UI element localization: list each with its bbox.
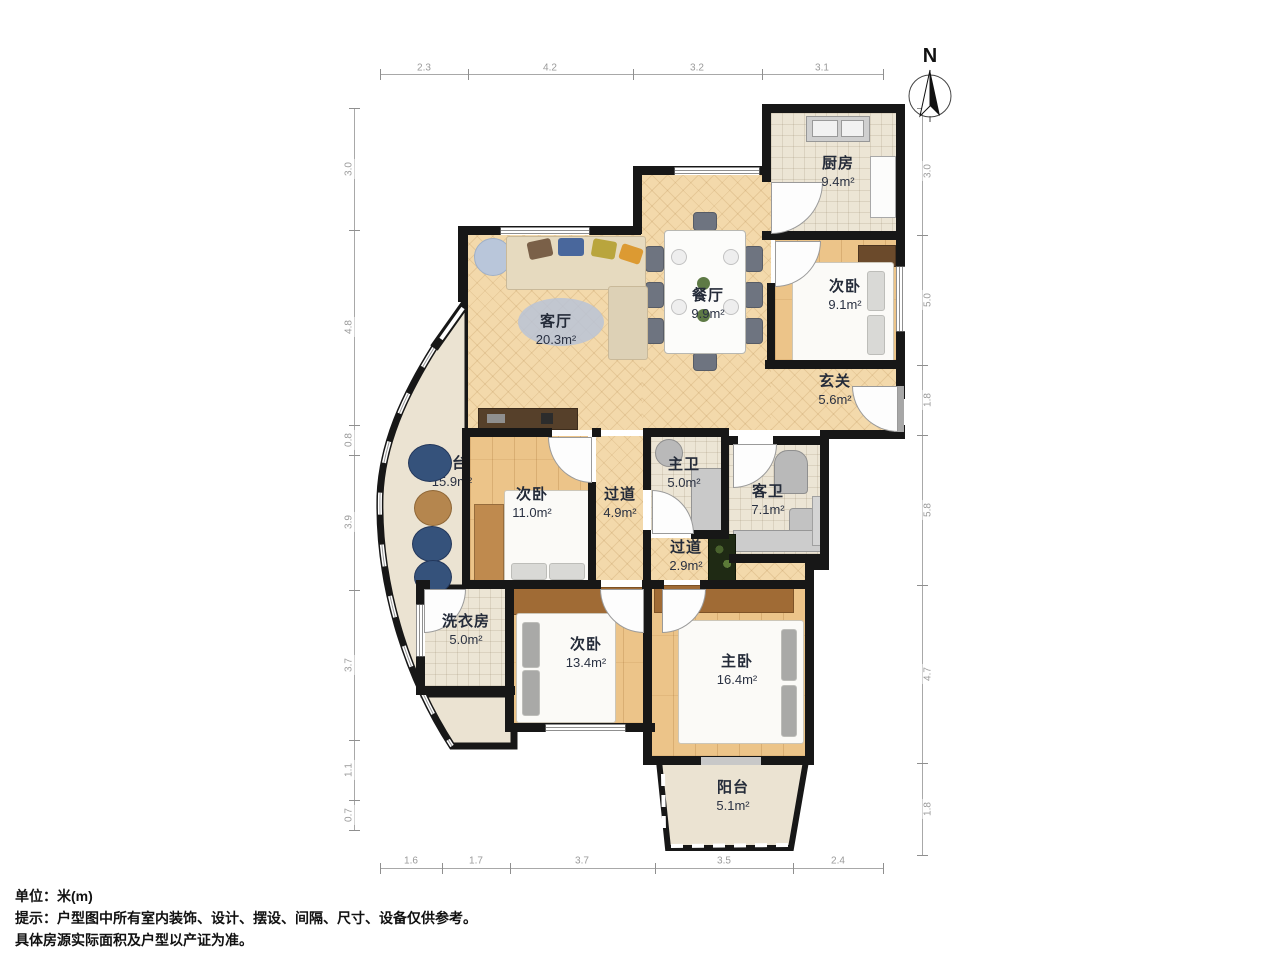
dim-tick <box>349 740 360 741</box>
dim-tick <box>349 425 360 426</box>
dim-right-3: 5.8 <box>923 500 934 520</box>
sofa-pillow-blue <box>558 238 584 256</box>
kitchen-sink-basin-right <box>841 120 864 137</box>
dim-right-1: 5.0 <box>923 290 934 310</box>
dim-tick <box>349 800 360 801</box>
wall <box>643 428 729 437</box>
notice-line-2: 具体房源实际面积及户型以产证为准。 <box>15 930 253 950</box>
bedroom3-wardrobe <box>474 504 504 584</box>
sofa-pillow-yellow <box>591 238 618 260</box>
wall <box>633 166 642 234</box>
wall <box>416 686 515 695</box>
dimension-line-right <box>922 108 923 855</box>
balcony-left-window <box>663 774 664 830</box>
living-window <box>500 227 590 235</box>
bedroom4-window <box>545 724 626 732</box>
kitchen-counter <box>870 156 896 218</box>
wall <box>896 104 905 399</box>
dim-tick <box>349 830 360 831</box>
dim-tick <box>917 855 928 856</box>
floorplan-page: 厨房9.4m² 次卧9.1m² 玄关5.6m² 餐厅9.9m² 客厅20.3m²… <box>0 0 1280 960</box>
wall <box>643 534 651 580</box>
tv-cabinet <box>478 408 578 430</box>
wall <box>762 104 905 113</box>
dining-chair <box>693 352 717 371</box>
guest-bath-toilet <box>774 450 808 494</box>
dim-right-2: 1.8 <box>923 390 934 410</box>
dim-tick <box>380 863 381 874</box>
dining-table <box>664 230 746 354</box>
bedroom3-bed <box>504 490 592 584</box>
dining-chair <box>693 212 717 231</box>
dim-top-1: 4.2 <box>540 63 560 74</box>
master-bed <box>678 620 804 744</box>
wall <box>767 283 775 365</box>
dim-tick <box>349 230 360 231</box>
dim-tick <box>655 863 656 874</box>
wall <box>462 428 470 589</box>
wall <box>416 580 430 589</box>
wall <box>729 554 822 563</box>
dim-left-0: 3.0 <box>344 159 355 179</box>
dim-left-2: 0.8 <box>344 430 355 450</box>
wall <box>691 530 729 539</box>
dim-bottom-2: 3.7 <box>572 856 592 867</box>
kitchen-sink-basin-left <box>812 120 838 137</box>
dining-window <box>674 167 760 175</box>
dining-chair <box>744 318 763 344</box>
dim-tick <box>793 863 794 874</box>
bedroom4-bed <box>516 613 616 723</box>
dim-tick <box>762 69 763 80</box>
dimension-line-top <box>380 74 883 75</box>
dim-tick <box>442 863 443 874</box>
wall <box>505 589 514 732</box>
dim-tick <box>349 590 360 591</box>
bedroom2-window <box>896 266 905 332</box>
dim-tick <box>349 455 360 456</box>
wall <box>462 428 552 437</box>
balcony-floor-shape <box>659 761 806 848</box>
dim-top-0: 2.3 <box>414 63 434 74</box>
master-bath-shower <box>691 468 724 532</box>
terrace-chair <box>412 526 452 562</box>
dimension-line-left <box>354 108 355 830</box>
dim-left-5: 1.1 <box>344 760 355 780</box>
dim-left-6: 0.7 <box>344 805 355 825</box>
terrace-table <box>414 490 452 526</box>
hallway1-floor <box>596 436 643 580</box>
wall <box>642 580 664 589</box>
north-label: N <box>923 45 937 67</box>
dimension-line-bottom <box>380 868 883 869</box>
dim-tick <box>510 863 511 874</box>
wall <box>805 561 814 765</box>
corridor-floor <box>729 562 805 580</box>
living-sofa-chaise <box>608 286 648 360</box>
dim-tick <box>917 763 928 764</box>
dim-left-3: 3.9 <box>344 512 355 532</box>
dim-bottom-4: 2.4 <box>828 856 848 867</box>
bedroom2-bed <box>792 262 894 362</box>
dim-tick <box>917 235 928 236</box>
dim-top-3: 3.1 <box>812 63 832 74</box>
wall <box>462 580 601 589</box>
wall <box>700 580 805 589</box>
dining-chair <box>744 282 763 308</box>
notice-line-1: 提示：户型图中所有室内装饰、设计、摆设、间隔、尺寸、设备仅供参考。 <box>15 908 477 928</box>
north-compass: N <box>898 42 962 124</box>
dim-tick <box>917 585 928 586</box>
dim-bottom-3: 3.5 <box>714 856 734 867</box>
dim-top-2: 3.2 <box>687 63 707 74</box>
wall <box>643 437 651 490</box>
master-bath-sink <box>655 439 683 467</box>
dim-left-1: 4.8 <box>344 317 355 337</box>
wall <box>721 437 729 538</box>
unit-note: 单位：米(m) <box>15 886 93 906</box>
wall <box>588 482 596 582</box>
dining-chair <box>645 246 664 272</box>
dim-bottom-1: 1.7 <box>466 856 486 867</box>
dim-right-4: 4.7 <box>923 664 934 684</box>
balcony-door-sill <box>701 757 761 765</box>
dim-tick <box>883 863 884 874</box>
dining-chair <box>744 246 763 272</box>
wall <box>820 430 829 570</box>
wall <box>643 589 652 759</box>
terrace-chair <box>408 444 452 482</box>
wall <box>592 428 601 437</box>
dim-right-0: 3.0 <box>923 161 934 181</box>
wall <box>773 436 822 445</box>
dim-tick <box>917 365 928 366</box>
dim-tick <box>349 108 360 109</box>
wall <box>643 530 651 539</box>
living-rug <box>518 298 604 346</box>
dim-tick <box>917 435 928 436</box>
dim-right-5: 1.8 <box>923 799 934 819</box>
wall <box>458 226 468 302</box>
dim-bottom-0: 1.6 <box>401 856 421 867</box>
dim-tick <box>883 69 884 80</box>
guest-bath-bathtub <box>733 530 822 552</box>
dim-left-4: 3.7 <box>344 655 355 675</box>
dim-tick <box>468 69 469 80</box>
wall <box>765 360 905 369</box>
dim-tick <box>380 69 381 80</box>
dim-tick <box>633 69 634 80</box>
